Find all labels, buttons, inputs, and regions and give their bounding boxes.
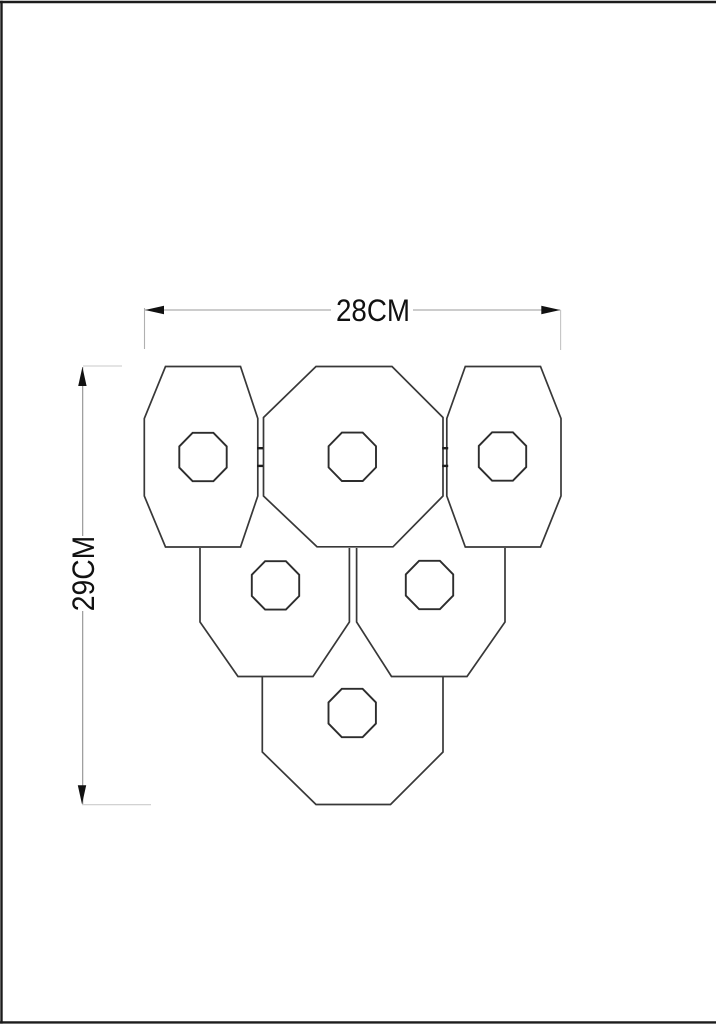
svg-text:29CM: 29CM [65, 536, 101, 612]
svg-text:28CM: 28CM [336, 292, 410, 328]
